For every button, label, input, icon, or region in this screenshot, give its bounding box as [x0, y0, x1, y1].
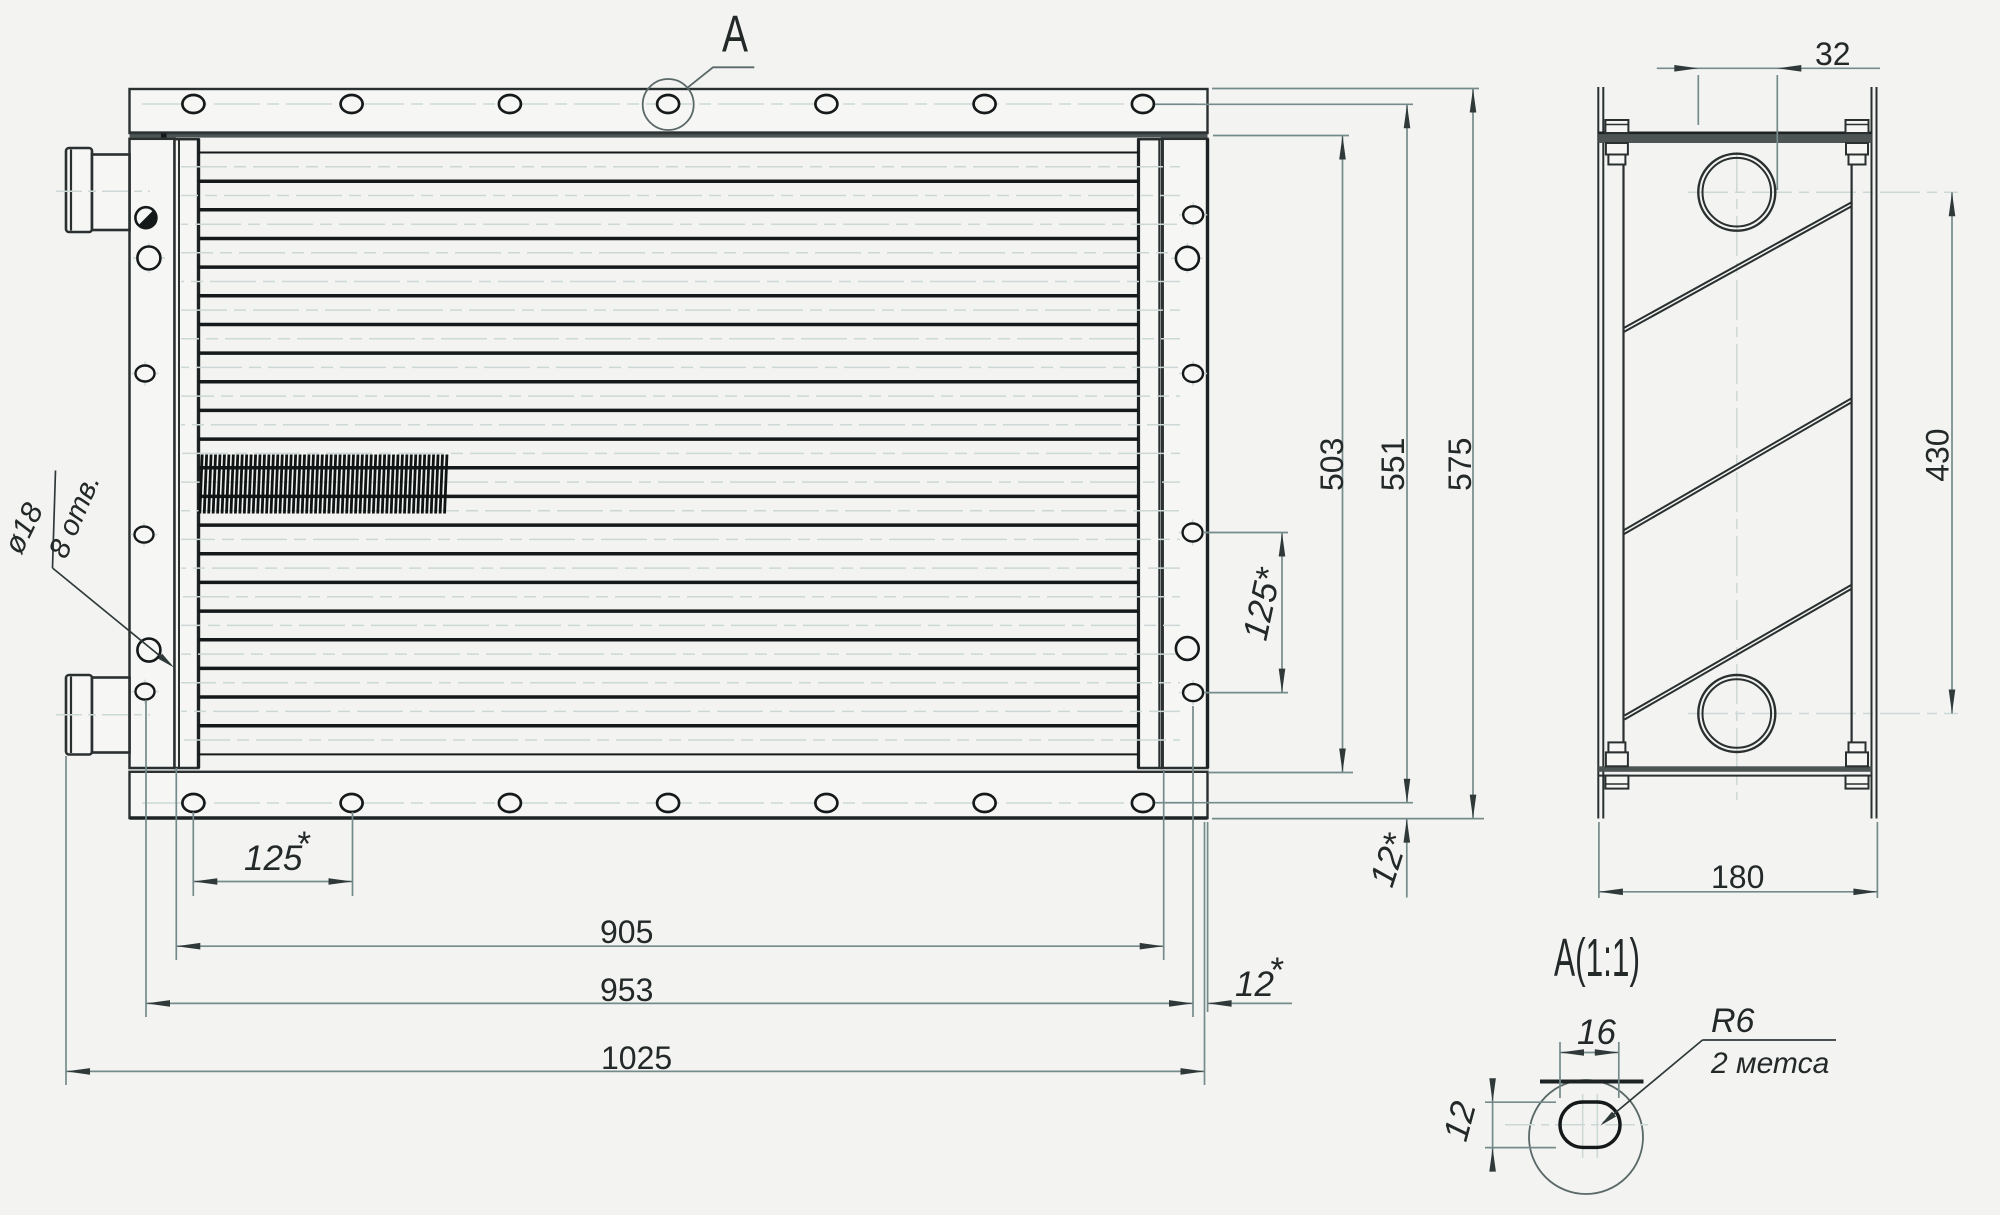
svg-text:503: 503 — [1314, 438, 1350, 491]
svg-text:*: * — [1269, 951, 1284, 990]
svg-text:180: 180 — [1711, 859, 1764, 895]
svg-text:32: 32 — [1815, 36, 1851, 72]
svg-text:16: 16 — [1577, 1013, 1616, 1052]
svg-text:1025: 1025 — [601, 1040, 672, 1076]
svg-text:551: 551 — [1375, 438, 1411, 491]
svg-text:905: 905 — [600, 914, 653, 950]
svg-text:575: 575 — [1442, 438, 1478, 491]
svg-text:430: 430 — [1920, 428, 1956, 481]
svg-text:R6: R6 — [1711, 1002, 1755, 1040]
svg-text:953: 953 — [600, 972, 653, 1008]
svg-text:125: 125 — [244, 839, 303, 878]
svg-text:A: A — [722, 6, 748, 64]
svg-text:*: * — [296, 825, 311, 864]
svg-text:2 метса: 2 метса — [1710, 1047, 1829, 1080]
svg-text:A(1:1): A(1:1) — [1554, 928, 1640, 988]
